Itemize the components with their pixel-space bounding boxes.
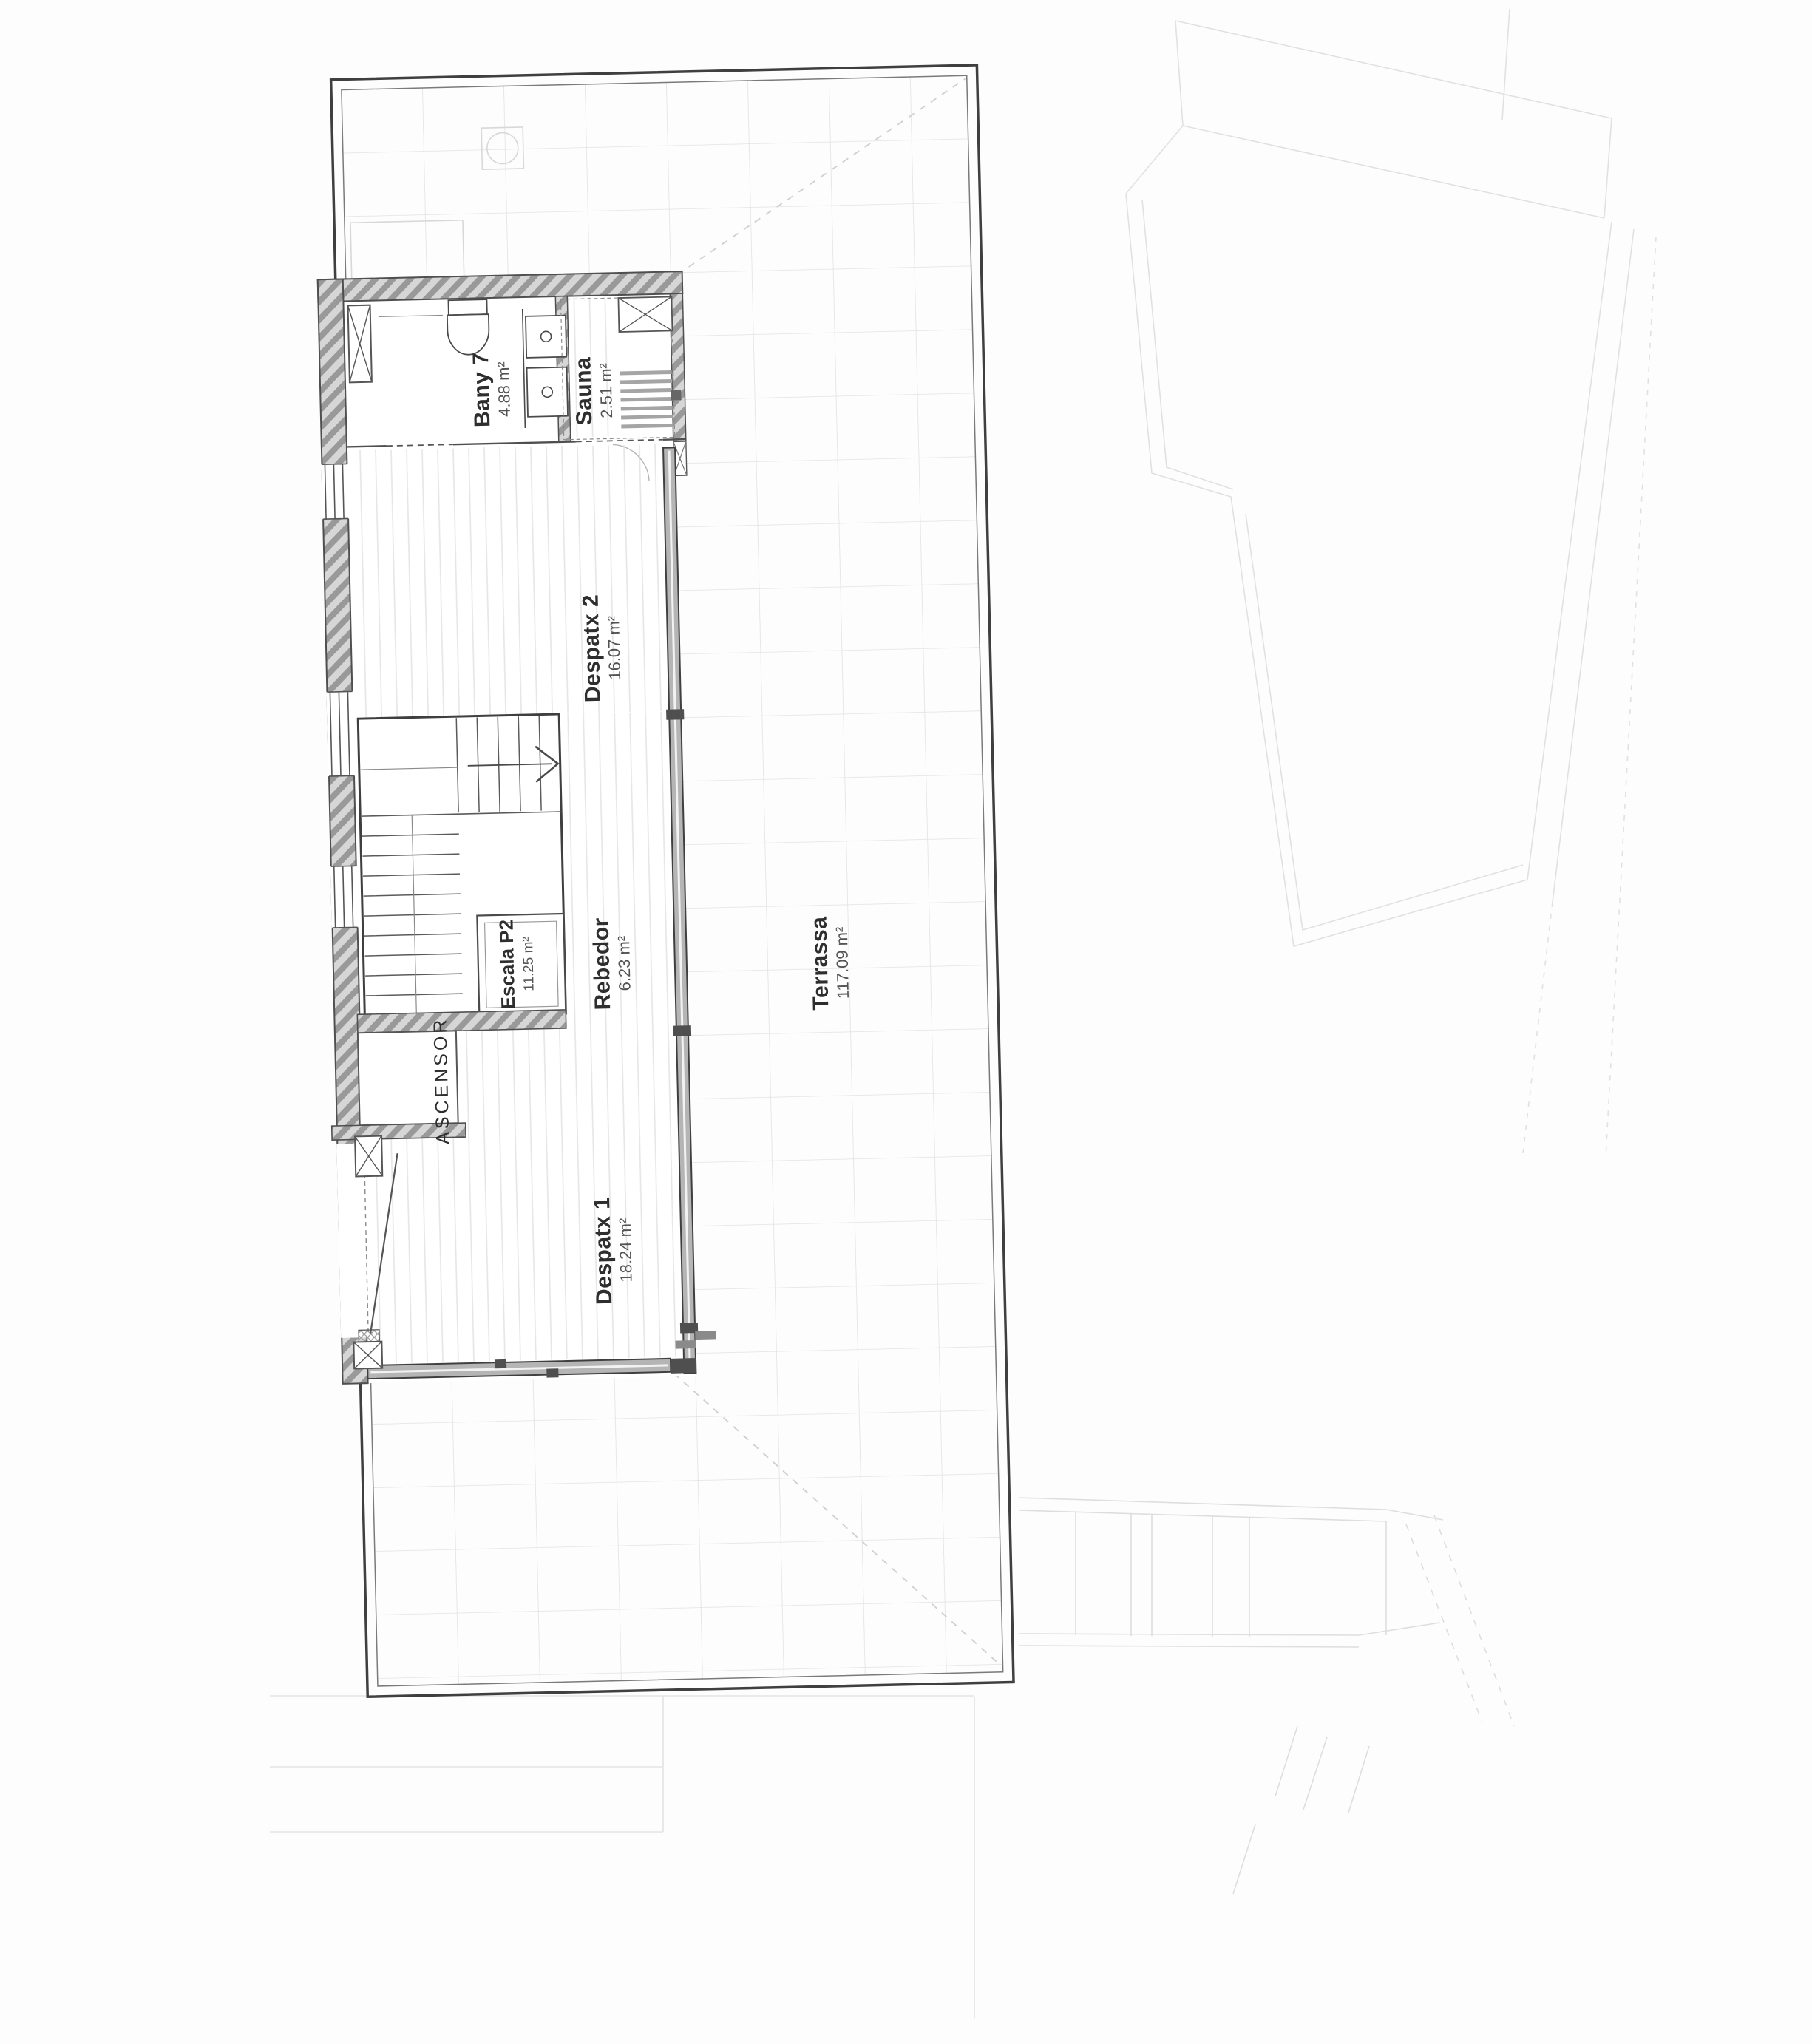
svg-text:Despatx 1: Despatx 1 [590, 1196, 617, 1305]
svg-text:2.51 m²: 2.51 m² [596, 363, 616, 418]
room-label-bany7: Bany 7 4.88 m² [469, 352, 514, 428]
svg-text:Bany 7: Bany 7 [469, 352, 495, 427]
main-plan: Bany 7 4.88 m² Sauna 2.51 m² Despatx 2 1… [308, 65, 1014, 1697]
svg-text:11.25 m²: 11.25 m² [520, 937, 537, 991]
svg-text:Terrassa: Terrassa [807, 916, 833, 1011]
room-label-terrassa: Terrassa 117.09 m² [807, 916, 852, 1011]
sauna-bench [620, 372, 673, 427]
sauna-skylight-x-icon [618, 296, 672, 332]
svg-text:Escala P2: Escala P2 [495, 920, 519, 1010]
svg-text:16.07 m²: 16.07 m² [604, 616, 624, 680]
floorplan-page: Bany 7 4.88 m² Sauna 2.51 m² Despatx 2 1… [0, 0, 1812, 2044]
door-handle [695, 1331, 716, 1340]
svg-text:Rebedor: Rebedor [588, 917, 615, 1011]
room-label-sauna: Sauna 2.51 m² [571, 356, 616, 426]
sink-icon [526, 316, 566, 358]
sauna-door-handle [671, 390, 681, 400]
svg-text:117.09 m²: 117.09 m² [832, 926, 852, 999]
se-corner-post [671, 1358, 696, 1374]
room-label-ascensor: ASCENSOR [430, 1016, 453, 1144]
svg-text:ASCENSOR: ASCENSOR [430, 1016, 453, 1144]
sink-icon [527, 367, 568, 417]
column-x-icon [348, 305, 372, 383]
svg-text:4.88 m²: 4.88 m² [494, 361, 514, 417]
column-x-icon [353, 1342, 382, 1369]
floorplan-canvas: Bany 7 4.88 m² Sauna 2.51 m² Despatx 2 1… [0, 0, 1812, 2044]
svg-text:6.23 m²: 6.23 m² [614, 936, 634, 991]
svg-text:18.24 m²: 18.24 m² [616, 1218, 636, 1282]
column-x-icon [355, 1136, 382, 1177]
toilet-icon [447, 299, 489, 355]
svg-text:Despatx 2: Despatx 2 [578, 594, 605, 703]
svg-text:Sauna: Sauna [571, 357, 597, 426]
door-handle-south [675, 1340, 696, 1349]
